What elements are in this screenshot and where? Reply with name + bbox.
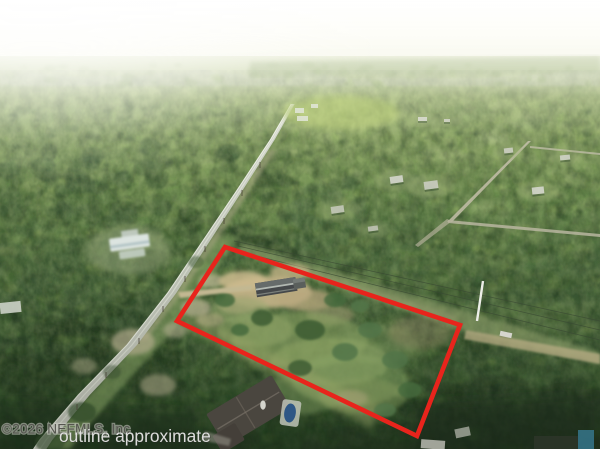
svg-text:outline approximate: outline approximate [59, 426, 211, 446]
